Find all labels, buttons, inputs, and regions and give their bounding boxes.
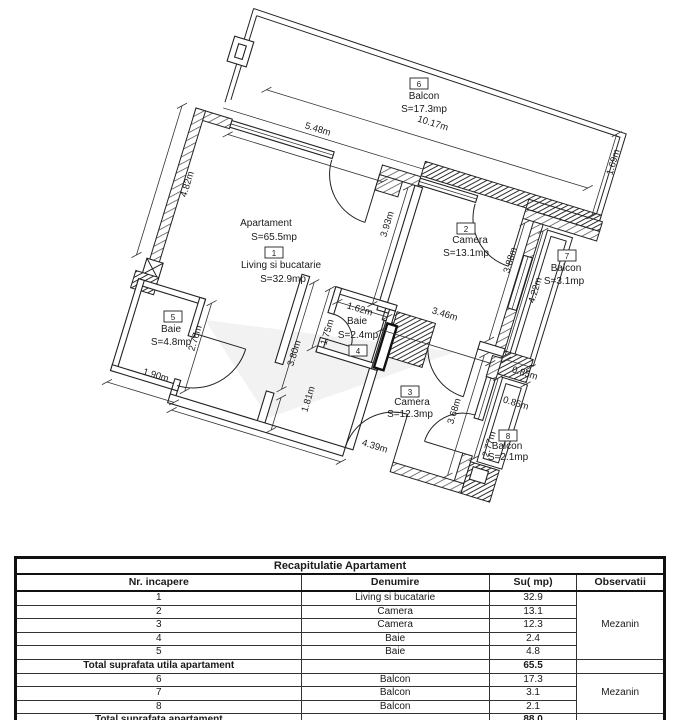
- room-area: S=2.1mp: [488, 452, 529, 463]
- dimension-label: 4.39m: [360, 437, 389, 455]
- room-name: Balcon: [551, 263, 582, 274]
- cell-denumire: Baie: [301, 632, 489, 646]
- floor-plan-page: { "plan": { "apartment_label": { "line1"…: [0, 0, 680, 720]
- table-cell: [301, 659, 489, 673]
- cell-nr: 1: [16, 591, 302, 605]
- table-cell: [301, 714, 489, 720]
- room-number: 5: [171, 313, 176, 322]
- dimension-label: 10.17m: [416, 114, 450, 134]
- apartment-label-line3: Living si bucatarie: [241, 260, 321, 271]
- cell-su: 12.3: [489, 619, 577, 633]
- cell-observatii: Mezanin: [577, 673, 665, 714]
- cell-denumire: Camera: [301, 619, 489, 633]
- cell-nr: 7: [16, 687, 302, 701]
- cell-observatii: Mezanin: [577, 591, 665, 659]
- cell-nr: 6: [16, 673, 302, 687]
- table-row: 8Balcon2.1: [16, 700, 665, 714]
- cell-nr: 5: [16, 646, 302, 660]
- subtotal-value: 65.5: [489, 659, 577, 673]
- apartment-label-line2: S=65.5mp: [251, 232, 297, 243]
- column-header: Observatii: [577, 574, 665, 591]
- cell-denumire: Balcon: [301, 700, 489, 714]
- room-number: 1: [272, 249, 277, 258]
- dimension-label: 3.68m: [445, 397, 463, 426]
- table-row: 3Camera12.3: [16, 619, 665, 633]
- cell-denumire: Balcon: [301, 673, 489, 687]
- recap-table-wrap: Recapitulatie ApartamentNr. incapereDenu…: [14, 556, 666, 720]
- dimension-label: 3.46m: [430, 305, 459, 323]
- room-area: S=13.1mp: [443, 248, 489, 259]
- table-row: 5Baie4.8: [16, 646, 665, 660]
- column-header: Denumire: [301, 574, 489, 591]
- recap-table: Recapitulatie ApartamentNr. incapereDenu…: [14, 556, 666, 720]
- cell-nr: 2: [16, 605, 302, 619]
- table-row: 7Balcon3.1: [16, 687, 665, 701]
- total-value: 88.0: [489, 714, 577, 720]
- room-area: S=2.4mp: [338, 330, 379, 341]
- cell-denumire: Living si bucatarie: [301, 591, 489, 605]
- table-cell: [577, 659, 665, 673]
- dimension-line: [223, 129, 388, 186]
- room-name: Camera: [394, 397, 430, 408]
- cell-su: 3.1: [489, 687, 577, 701]
- partition: [377, 185, 423, 312]
- table-row: 4Baie2.4: [16, 632, 665, 646]
- apartment-label-line4: S=32.9mp: [260, 274, 306, 285]
- room-area: S=4.8mp: [151, 337, 192, 348]
- room-name: Balcon: [409, 91, 440, 102]
- table-cell: [577, 714, 665, 720]
- dimension-line: [167, 405, 346, 467]
- door-arc: [317, 160, 379, 222]
- table-row: 1Living si bucatarie32.9Mezanin: [16, 591, 665, 605]
- room-area: S=12.3mp: [387, 409, 433, 420]
- room-number: 8: [506, 432, 511, 441]
- room-name: Balcon: [492, 441, 523, 452]
- dimension-label: 5.48m: [303, 120, 332, 138]
- column-header: Nr. incapere: [16, 574, 302, 591]
- dimension-label: 3.88m: [501, 246, 519, 275]
- room-name: Baie: [347, 316, 367, 327]
- table-title: Recapitulatie Apartament: [16, 558, 665, 575]
- floor-plan-drawing: 10.17m5.48m4.82m3.93m3.88m1.69m4.22m3.46…: [0, 0, 680, 552]
- room-number: 4: [356, 347, 361, 356]
- cell-denumire: Balcon: [301, 687, 489, 701]
- table-row: 6Balcon17.3Mezanin: [16, 673, 665, 687]
- cell-nr: 8: [16, 700, 302, 714]
- cell-denumire: Camera: [301, 605, 489, 619]
- room-area: S=17.3mp: [401, 104, 447, 115]
- table-total-row: Total suprafata apartament88.0: [16, 714, 665, 720]
- room-name: Baie: [161, 324, 181, 335]
- dimension-label: 0.85m: [501, 394, 530, 412]
- room-name: Camera: [452, 235, 488, 246]
- room-number: 3: [408, 388, 413, 397]
- cell-nr: 3: [16, 619, 302, 633]
- table-subtotal-row: Total suprafata utila apartament65.5: [16, 659, 665, 673]
- table-header-row: Nr. incapereDenumireSu( mp)Observatii: [16, 574, 665, 591]
- table-title-row: Recapitulatie Apartament: [16, 558, 665, 575]
- dimension-label: 1.69m: [604, 148, 622, 177]
- room-number: 6: [417, 80, 422, 89]
- cell-su: 4.8: [489, 646, 577, 660]
- dimension-label: 4.22m: [526, 276, 544, 305]
- cell-denumire: Baie: [301, 646, 489, 660]
- room-number: 7: [565, 252, 570, 261]
- column-header: Su( mp): [489, 574, 577, 591]
- cell-su: 2.1: [489, 700, 577, 714]
- cell-nr: 4: [16, 632, 302, 646]
- subtotal-label: Total suprafata utila apartament: [16, 659, 302, 673]
- table-row: 2Camera13.1: [16, 605, 665, 619]
- room-number: 2: [464, 225, 469, 234]
- cell-su: 17.3: [489, 673, 577, 687]
- room-area: S=3.1mp: [544, 276, 585, 287]
- apartment-label-line1: Apartament: [240, 218, 292, 229]
- cell-su: 2.4: [489, 632, 577, 646]
- cell-su: 32.9: [489, 591, 577, 605]
- total-label: Total suprafata apartament: [16, 714, 302, 720]
- cell-su: 13.1: [489, 605, 577, 619]
